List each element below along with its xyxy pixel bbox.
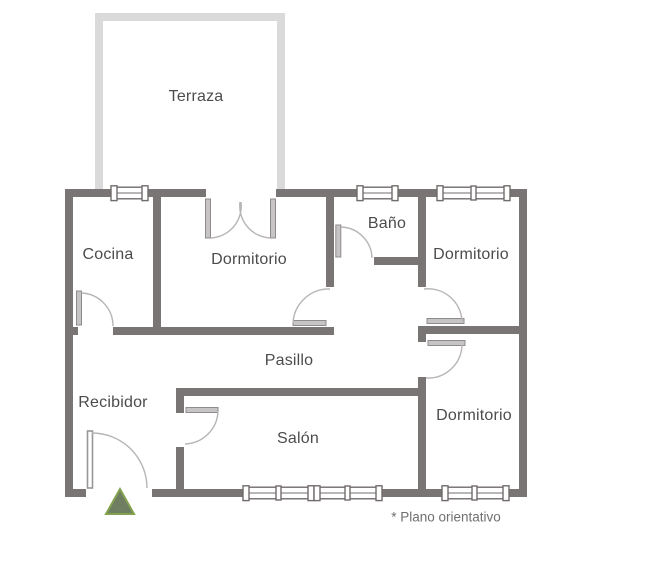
room-label-dormitorio-top: Dormitorio — [211, 251, 287, 269]
doors — [77, 199, 466, 488]
room-label-recibidor: Recibidor — [78, 394, 147, 412]
window-dormitorio-right-bottom — [442, 486, 509, 501]
door-dormitorio-top — [293, 289, 330, 326]
window-bano — [357, 186, 398, 201]
floorplan: Terraza Cocina Dormitorio Baño Dormitori… — [0, 0, 661, 578]
floorplan-drawing — [0, 0, 661, 578]
door-entrance — [88, 431, 148, 488]
room-label-bano: Baño — [368, 215, 406, 233]
window-salon-left — [243, 486, 314, 501]
room-label-dormitorio-right-top: Dormitorio — [433, 246, 509, 264]
door-bano — [336, 225, 372, 258]
room-label-cocina: Cocina — [82, 246, 133, 264]
door-terraza-french — [206, 199, 276, 238]
door-dormitorio-right-top — [424, 289, 464, 324]
entrance-arrow-icon — [106, 489, 134, 514]
footnote-plano-orientativo: * Plano orientativo — [391, 510, 501, 525]
room-label-dormitorio-right-bottom: Dormitorio — [436, 407, 512, 425]
room-label-terraza: Terraza — [169, 88, 224, 106]
door-cocina — [77, 291, 114, 326]
window-salon-right — [314, 486, 382, 501]
window-cocina — [111, 186, 148, 201]
room-label-pasillo: Pasillo — [265, 352, 314, 370]
door-salon — [185, 408, 218, 445]
window-dormitorio-right-top — [437, 186, 510, 201]
room-label-salon: Salón — [277, 430, 319, 448]
door-dormitorio-right-bottom — [426, 341, 465, 379]
